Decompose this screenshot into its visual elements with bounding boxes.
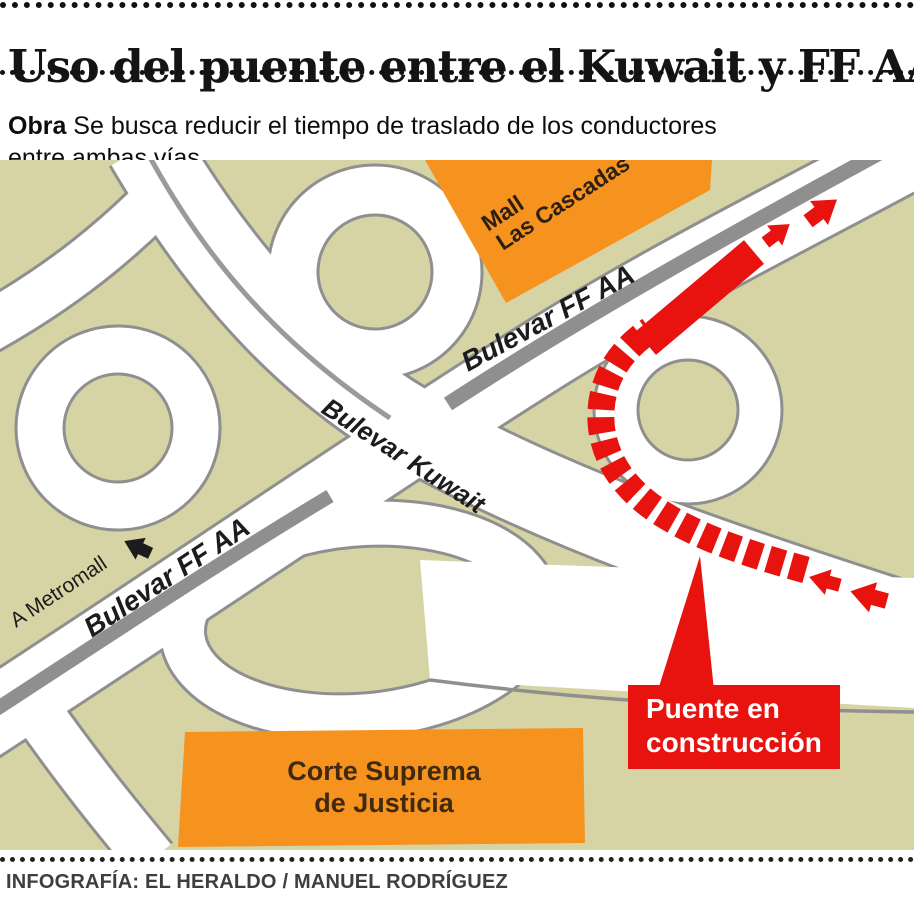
corte-label-line2: de Justicia [314, 788, 455, 818]
infographic-page: Uso del puente entre el Kuwait y FF AA O… [0, 0, 914, 900]
corte-label-line1: Corte Suprema [287, 756, 482, 786]
callout-line1: Puente en [646, 693, 780, 724]
interchange-map: Mall Las Cascadas Bulevar FF AA Bulevar … [0, 160, 914, 850]
footer: INFOGRAFÍA: EL HERALDO / MANUEL RODRÍGUE… [0, 857, 914, 894]
map-canvas: Mall Las Cascadas Bulevar FF AA Bulevar … [0, 160, 914, 850]
page-title: Uso del puente entre el Kuwait y FF AA [8, 40, 908, 93]
callout-line2: construcción [646, 727, 822, 758]
subtitle-kicker: Obra [8, 112, 66, 140]
credit-line: INFOGRAFÍA: EL HERALDO / MANUEL RODRÍGUE… [6, 871, 914, 894]
top-dotted-rule [0, 2, 914, 8]
title-dotted-rule [0, 70, 914, 75]
